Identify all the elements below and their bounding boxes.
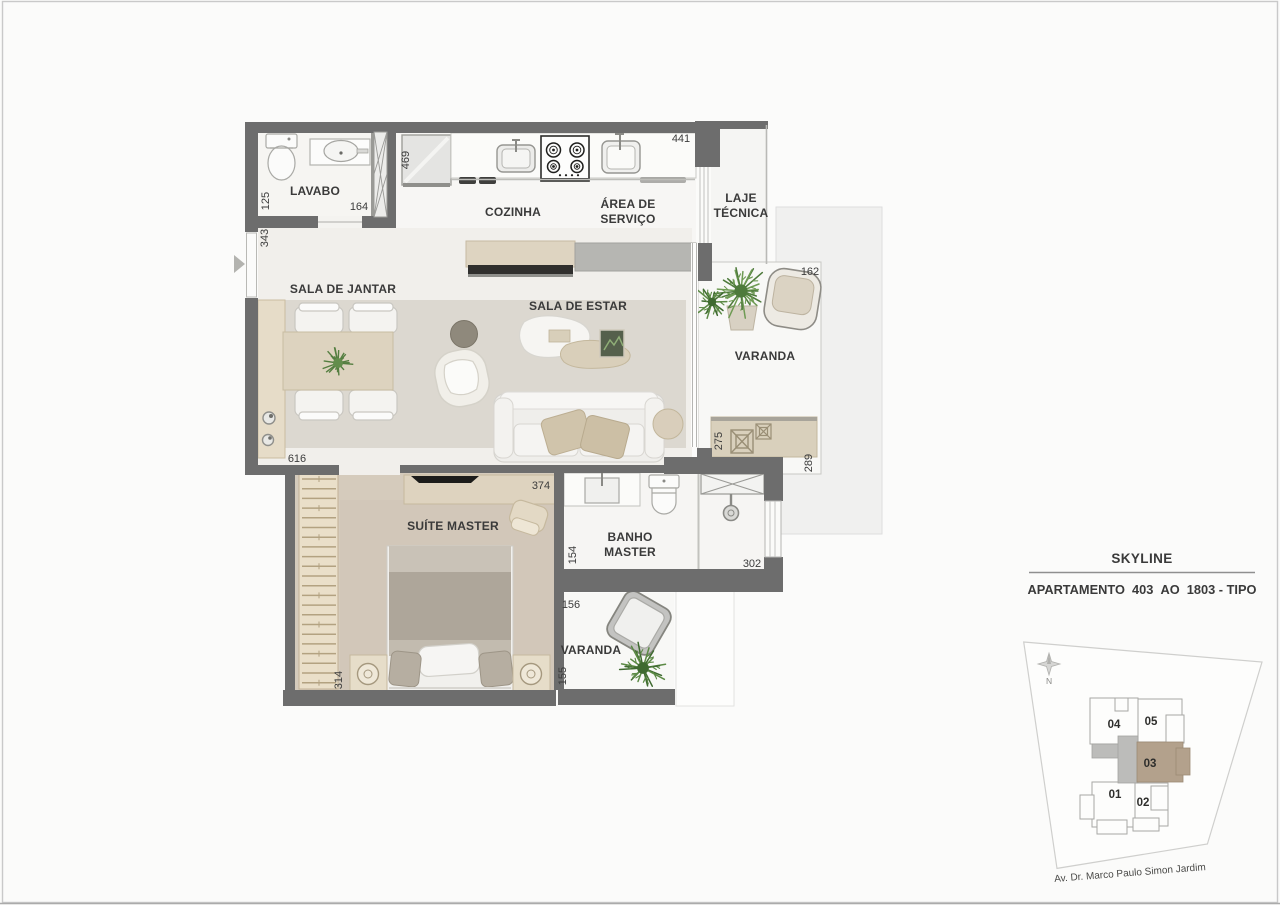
svg-text:MASTER: MASTER (604, 545, 656, 559)
svg-text:125: 125 (260, 192, 272, 210)
svg-text:SERVIÇO: SERVIÇO (600, 212, 655, 226)
svg-text:343: 343 (259, 229, 271, 247)
svg-text:SALA DE JANTAR: SALA DE JANTAR (290, 282, 396, 296)
svg-text:04: 04 (1108, 719, 1121, 731)
svg-text:BANHO: BANHO (608, 530, 653, 544)
svg-text:ÁREA DE: ÁREA DE (601, 196, 656, 211)
svg-text:TÉCNICA: TÉCNICA (714, 205, 769, 220)
svg-text:441: 441 (672, 133, 690, 145)
svg-text:N: N (1046, 676, 1052, 686)
svg-text:APARTAMENTO 403 AO 1803 - T: APARTAMENTO 403 AO 1803 - TIPO (1028, 582, 1257, 597)
svg-text:314: 314 (333, 671, 345, 689)
svg-text:03: 03 (1144, 758, 1157, 770)
svg-text:LAJE: LAJE (725, 191, 756, 205)
svg-text:02: 02 (1137, 797, 1150, 809)
svg-text:155: 155 (557, 667, 569, 685)
svg-text:154: 154 (567, 546, 579, 564)
svg-text:162: 162 (801, 266, 819, 278)
svg-text:SKYLINE: SKYLINE (1111, 551, 1172, 566)
svg-text:VARANDA: VARANDA (561, 643, 622, 657)
svg-text:469: 469 (400, 151, 412, 169)
svg-text:SALA DE ESTAR: SALA DE ESTAR (529, 299, 627, 313)
svg-text:289: 289 (803, 454, 815, 472)
svg-text:05: 05 (1145, 716, 1158, 728)
svg-text:156: 156 (562, 599, 580, 611)
svg-text:616: 616 (288, 453, 306, 465)
svg-text:275: 275 (713, 432, 725, 450)
svg-text:VARANDA: VARANDA (735, 349, 796, 363)
svg-text:302: 302 (743, 558, 761, 570)
svg-text:374: 374 (532, 480, 550, 492)
svg-text:LAVABO: LAVABO (290, 184, 340, 198)
svg-text:164: 164 (350, 201, 368, 213)
svg-text:01: 01 (1109, 789, 1122, 801)
svg-text:SUÍTE MASTER: SUÍTE MASTER (407, 518, 499, 533)
svg-text:COZINHA: COZINHA (485, 205, 541, 219)
